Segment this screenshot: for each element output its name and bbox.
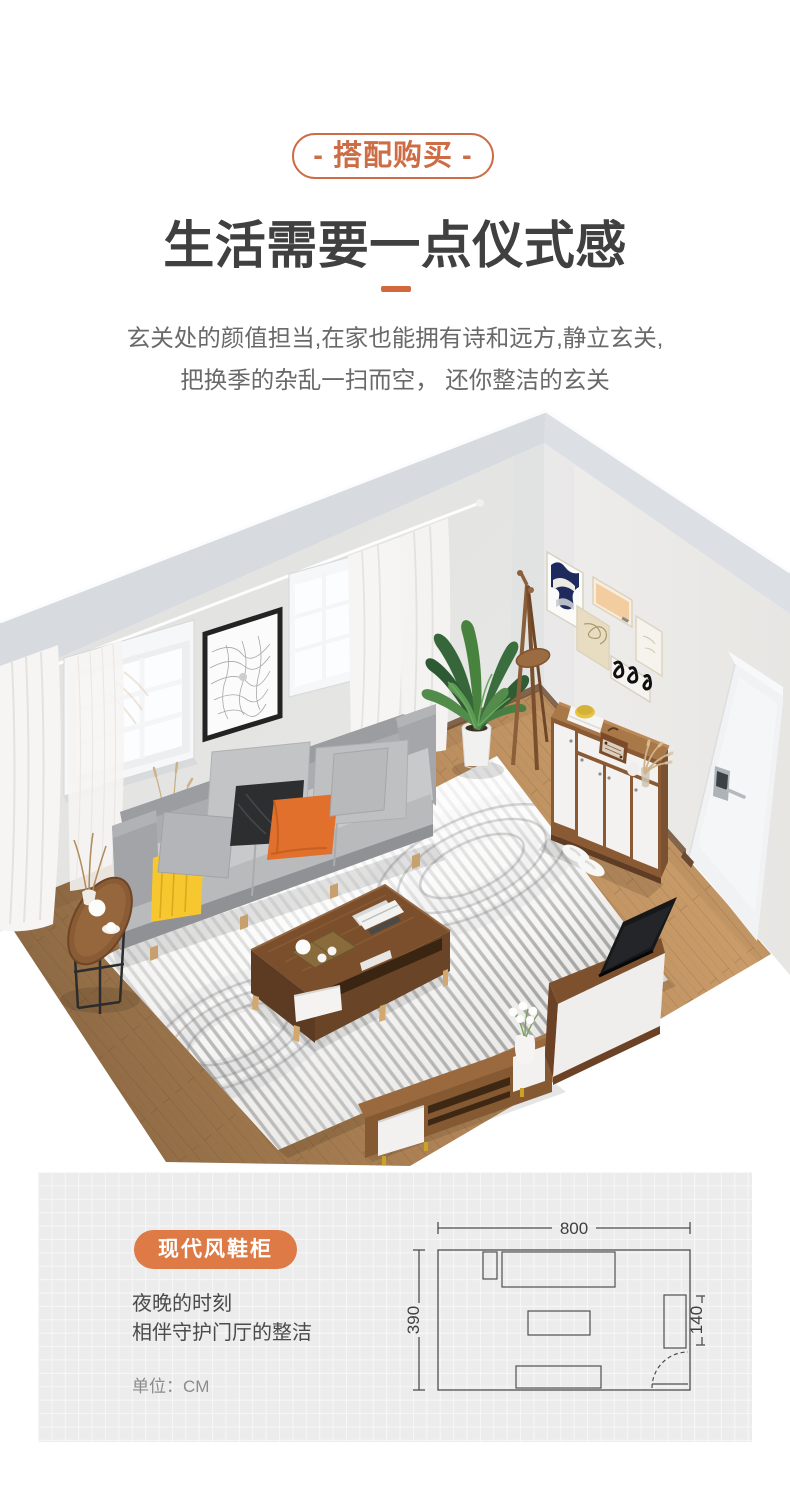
- svg-text:390: 390: [404, 1306, 423, 1334]
- svg-text:800: 800: [560, 1219, 588, 1238]
- svg-text:140: 140: [687, 1306, 705, 1334]
